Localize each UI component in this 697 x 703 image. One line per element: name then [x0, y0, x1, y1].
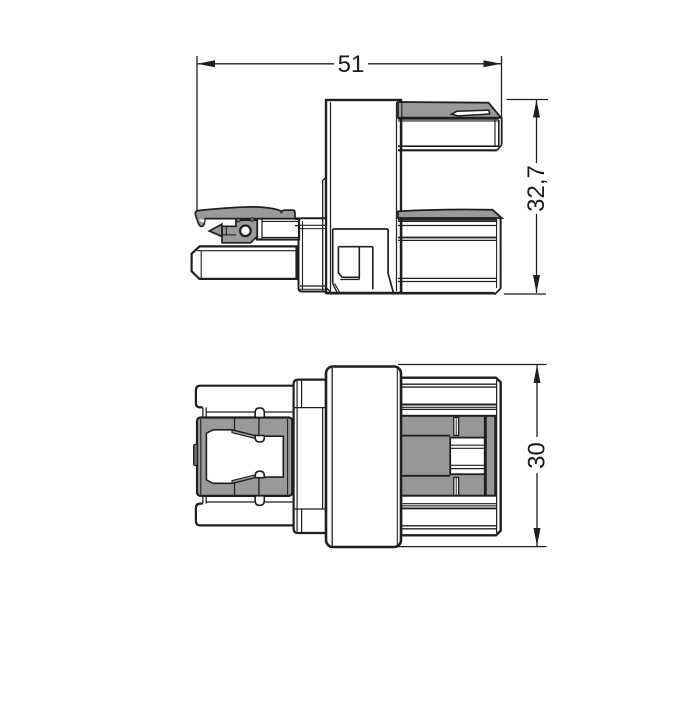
- svg-text:51: 51: [338, 51, 365, 78]
- svg-text:32,7: 32,7: [523, 165, 550, 212]
- svg-text:30: 30: [524, 442, 551, 469]
